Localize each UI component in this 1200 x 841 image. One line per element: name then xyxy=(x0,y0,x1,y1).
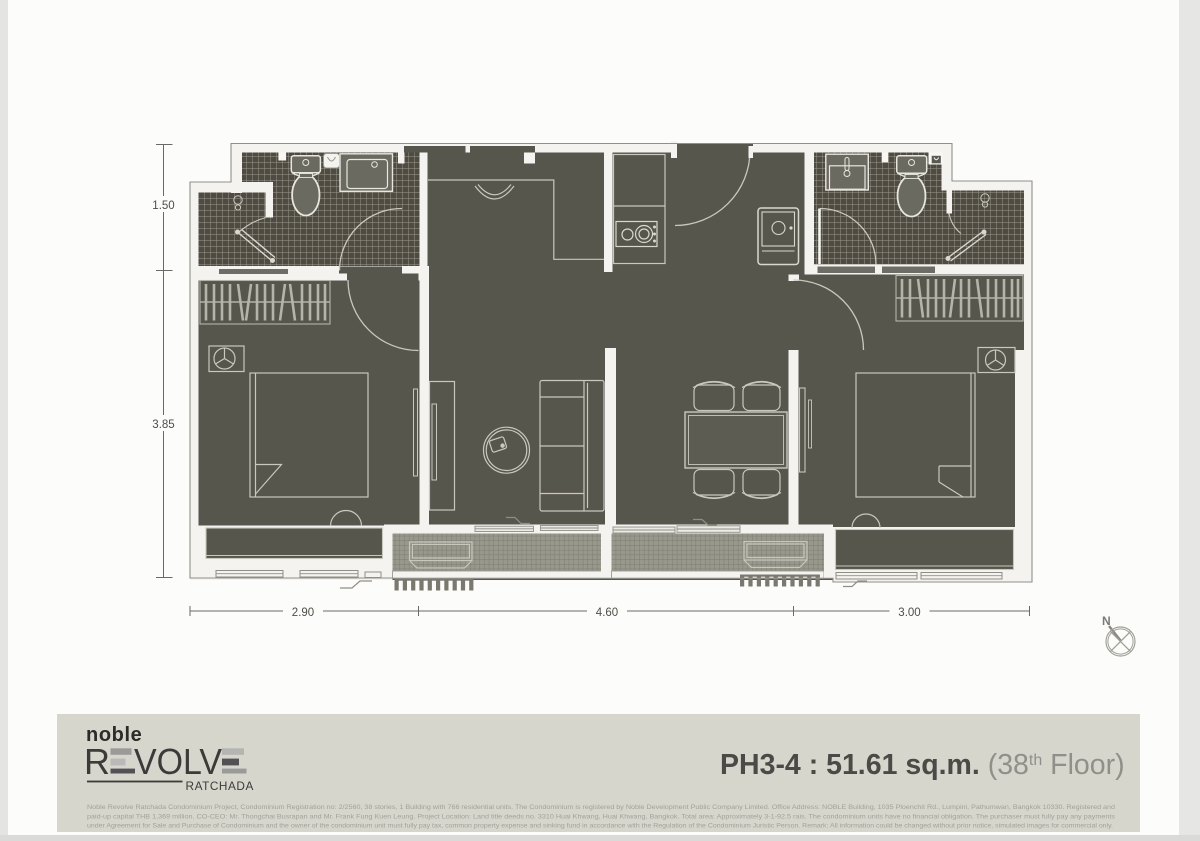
svg-text:2.90: 2.90 xyxy=(292,607,314,619)
svg-text:under Agreement for Sale and P: under Agreement for Sale and Purchase of… xyxy=(87,823,1113,830)
svg-text:paid-up capital THB 1,369 mill: paid-up capital THB 1,369 million. CO-CE… xyxy=(87,813,1116,820)
svg-text:Noble Revolve Ratchada Condomi: Noble Revolve Ratchada Condominium Proje… xyxy=(87,804,1115,811)
svg-text:R: R xyxy=(84,741,111,782)
svg-text:RATCHADA: RATCHADA xyxy=(186,779,254,793)
svg-text:1.50: 1.50 xyxy=(152,200,174,212)
svg-text:VOLV: VOLV xyxy=(134,741,222,782)
svg-text:3.85: 3.85 xyxy=(152,419,174,431)
svg-text:PH3-4 : 51.61 sq.m. (38th Floo: PH3-4 : 51.61 sq.m. (38th Floor) xyxy=(720,749,1125,781)
svg-text:3.00: 3.00 xyxy=(898,607,920,619)
svg-text:4.60: 4.60 xyxy=(596,607,618,619)
